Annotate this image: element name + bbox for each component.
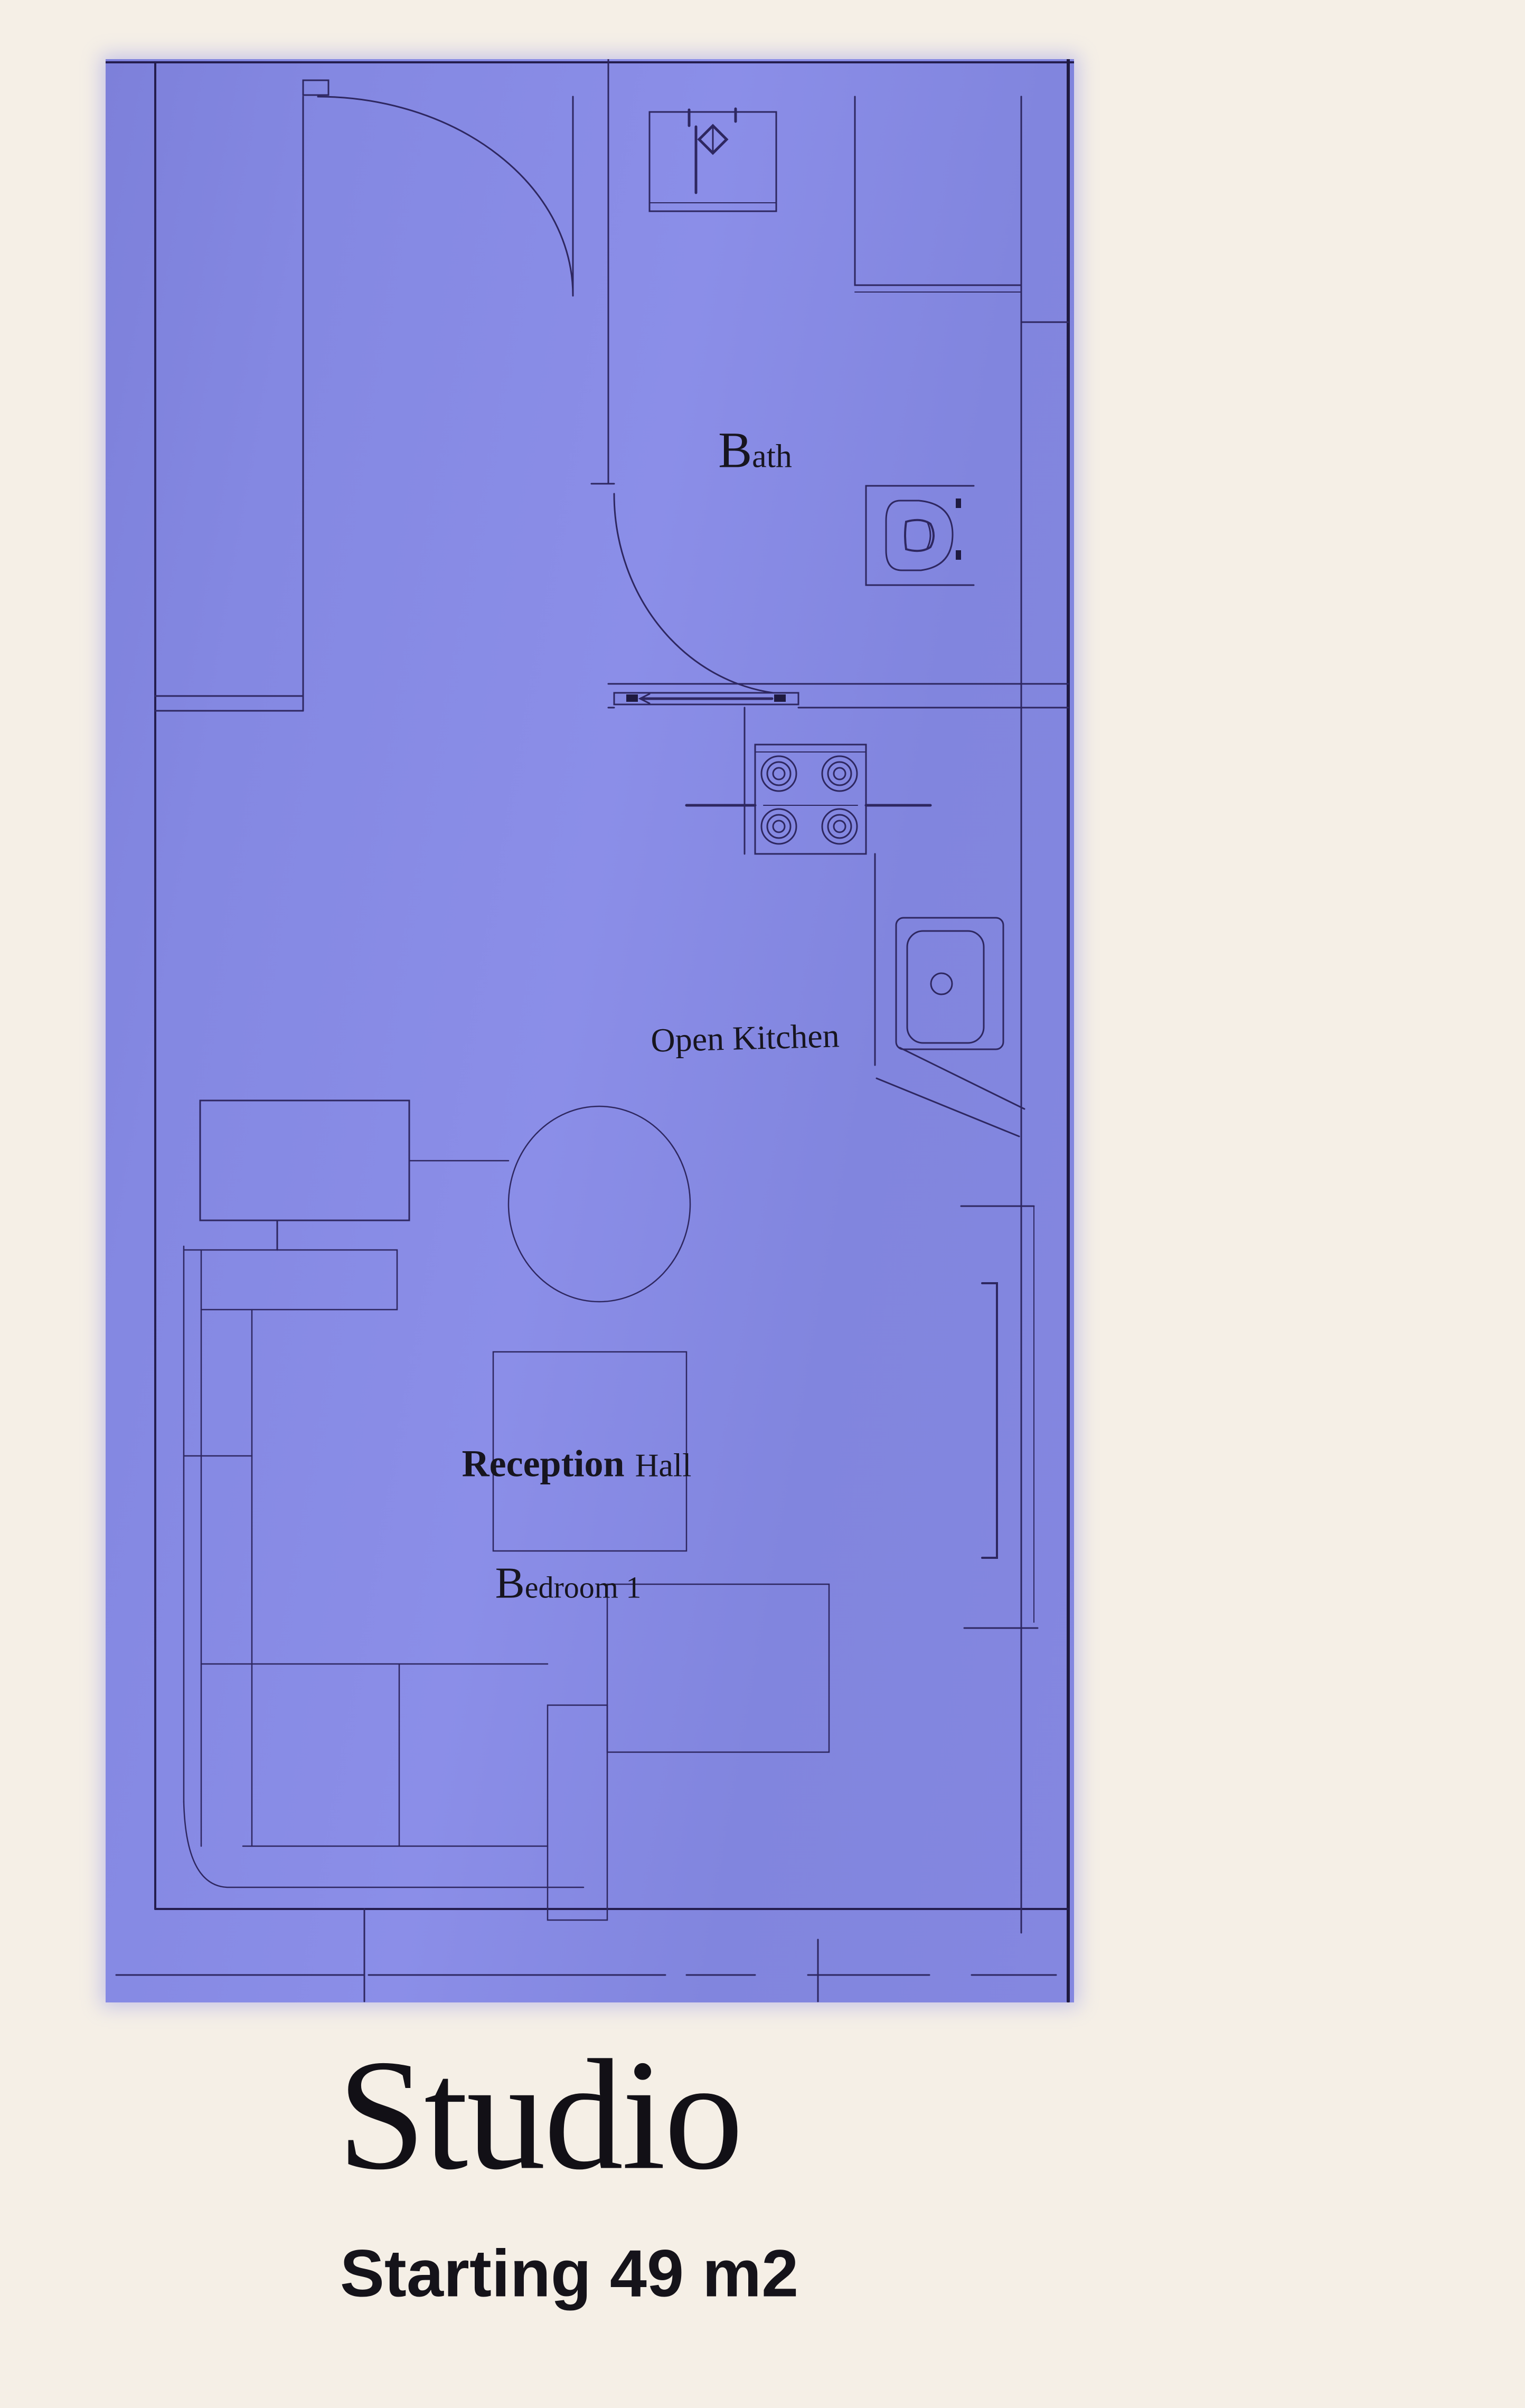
room-label-open-kitchen: Open Kitchen bbox=[650, 1016, 840, 1060]
kitchen-sink-icon bbox=[875, 854, 1024, 1136]
room-label-reception-hall: ReceptionHall bbox=[462, 1442, 692, 1486]
floor-plan-drawing bbox=[106, 59, 1074, 2002]
room-label-bath: Bath bbox=[718, 421, 792, 479]
floor-plan-canvas bbox=[106, 59, 1074, 2002]
bath-door-icon bbox=[614, 494, 798, 704]
unit-type-title: Studio bbox=[337, 2024, 742, 2206]
washbasin-icon bbox=[649, 109, 776, 211]
stove-icon bbox=[686, 708, 930, 854]
toilet-icon bbox=[866, 486, 974, 585]
floor-plan-page: Bath Open Kitchen ReceptionHall Bedroom … bbox=[0, 0, 1525, 2408]
tv-unit-icon bbox=[200, 1100, 409, 1250]
unit-area-subtitle: Starting 49 m2 bbox=[340, 2235, 798, 2312]
shower-icon bbox=[855, 97, 1021, 292]
dining-table-icon bbox=[409, 1106, 690, 1302]
entry-door-icon bbox=[318, 97, 573, 296]
walls bbox=[106, 59, 1074, 2001]
bed-bench-icon bbox=[607, 1584, 829, 1752]
reception-label-suffix: Hall bbox=[635, 1448, 692, 1484]
reception-label-main: Reception bbox=[462, 1443, 625, 1485]
room-label-bedroom-1: Bedroom 1 bbox=[495, 1558, 642, 1609]
